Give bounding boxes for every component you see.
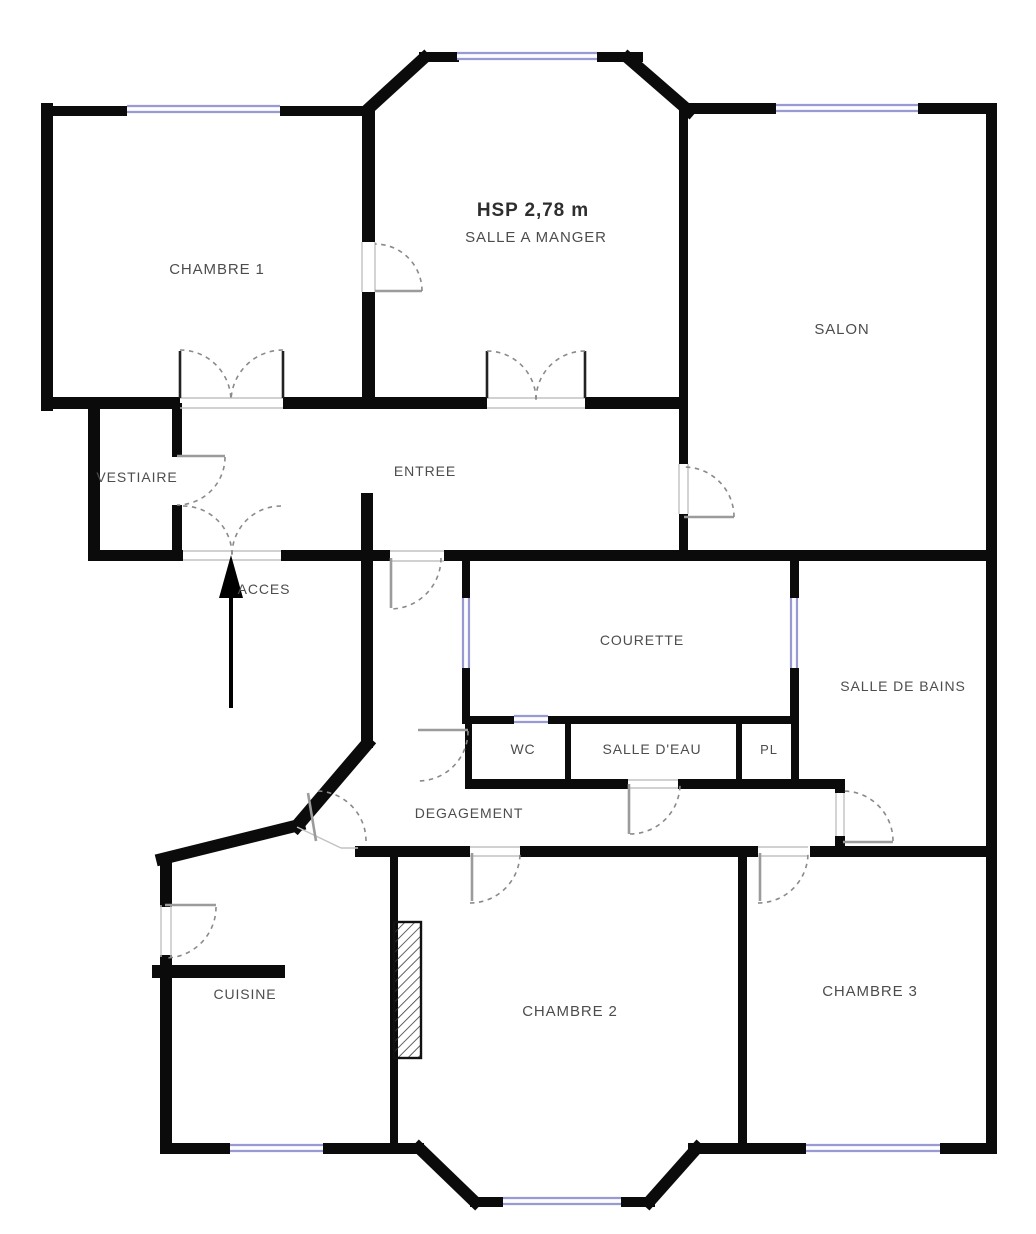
wall-segment [281, 550, 390, 561]
wall-segment [940, 1143, 997, 1154]
walls-layer [41, 52, 997, 1207]
wall-segment [548, 716, 798, 724]
wall-segment [323, 1143, 424, 1154]
room-label: SALLE D'EAU [603, 741, 702, 757]
wall-segment [160, 1143, 230, 1154]
wall-segment [986, 103, 997, 1152]
wall-diagonal [419, 1148, 475, 1202]
wall-segment [790, 561, 799, 598]
door-swing-arc [180, 350, 231, 401]
door-swing-arc [470, 853, 520, 903]
room-label: COURETTE [600, 632, 684, 648]
room-label: DEGAGEMENT [415, 805, 524, 821]
door-swing-arc [487, 351, 536, 400]
wall-segment [683, 103, 776, 114]
door-swing-arc [843, 791, 893, 841]
door-swing-arc [418, 731, 468, 781]
wall-segment [362, 292, 375, 409]
wall-diagonal [366, 58, 424, 111]
wall-segment [835, 779, 845, 793]
wall-segment [678, 779, 840, 789]
wall-segment [688, 1143, 806, 1154]
wall-segment [362, 106, 375, 242]
wall-segment [361, 493, 373, 748]
room-label: CHAMBRE 2 [522, 1003, 618, 1020]
door-threshold-line [297, 827, 341, 848]
wall-segment [565, 724, 571, 780]
wall-segment [41, 397, 180, 409]
wall-segment [41, 106, 127, 116]
wall-segment [810, 846, 997, 857]
door-swing-arc [165, 907, 216, 958]
room-label: ACCES [238, 581, 291, 597]
wall-segment [683, 550, 997, 561]
door-swing-arc [758, 853, 808, 903]
wall-segment [585, 397, 683, 409]
door-swing-arc [232, 506, 281, 555]
wall-diagonal [628, 58, 689, 111]
room-labels-layer: CHAMBRE 1HSP 2,78 mSALLE A MANGERSALONVE… [96, 200, 965, 1020]
room-label: PL [760, 742, 778, 757]
wall-segment [520, 846, 758, 857]
door-swing-arc [231, 350, 283, 401]
door-swing-arc [630, 784, 680, 834]
room-label: VESTIAIRE [96, 469, 177, 485]
wall-segment [462, 716, 514, 724]
wall-segment [679, 108, 688, 464]
chimney-flue-hatch [394, 922, 421, 1058]
wall-segment [462, 561, 470, 598]
wall-segment [790, 668, 799, 724]
wall-segment [791, 724, 799, 780]
wall-segment [280, 106, 368, 116]
wall-segment [918, 103, 997, 114]
door-swing-arc [183, 506, 232, 555]
wall-segment [468, 550, 683, 561]
wall-segment [679, 514, 688, 556]
floor-plan-page: CHAMBRE 1HSP 2,78 mSALLE A MANGERSALONVE… [0, 0, 1036, 1234]
room-label: HSP 2,78 m [477, 200, 589, 221]
room-label: ENTREE [394, 463, 456, 479]
wall-segment [736, 724, 742, 780]
door-swing-arc [684, 467, 734, 517]
wall-diagonal [649, 1148, 697, 1202]
access-arrow-layer [219, 555, 243, 708]
wall-segment [444, 550, 468, 561]
door-swing-arc [536, 351, 585, 400]
room-label: SALLE A MANGER [465, 229, 607, 246]
wall-diagonal [162, 825, 299, 859]
room-label: CHAMBRE 1 [169, 261, 265, 278]
room-label: SALON [814, 321, 869, 338]
windows-layer [127, 52, 940, 1205]
wall-segment [375, 397, 487, 409]
wall-segment [172, 403, 182, 457]
wall-segment [355, 846, 470, 857]
floor-plan-svg: CHAMBRE 1HSP 2,78 mSALLE A MANGERSALONVE… [0, 0, 1036, 1234]
wall-segment [462, 668, 470, 724]
room-label: SALLE DE BAINS [840, 678, 965, 694]
chimney-layer [394, 922, 421, 1058]
door-swing-arc [177, 457, 225, 505]
wall-segment [160, 955, 172, 1153]
room-label: CUISINE [213, 986, 276, 1002]
wall-diagonal [297, 744, 367, 826]
wall-segment [283, 397, 375, 409]
room-label: WC [510, 741, 535, 757]
wall-segment [738, 846, 747, 1151]
door-swing-arc [390, 558, 441, 609]
wall-segment [41, 103, 53, 411]
door-swing-arc [375, 244, 422, 291]
room-label: CHAMBRE 3 [822, 983, 918, 1000]
wall-segment [465, 779, 628, 789]
wall-segment [152, 965, 285, 978]
wall-segment [88, 550, 183, 561]
